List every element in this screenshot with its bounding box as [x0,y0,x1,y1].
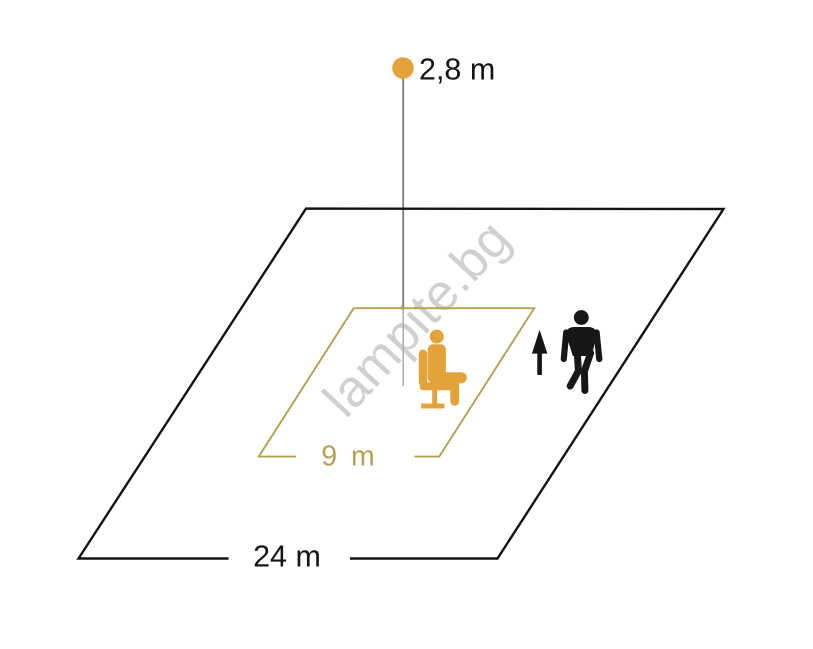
svg-text:24 m: 24 m [253,540,321,574]
svg-text:2,8 m: 2,8 m [419,53,495,87]
svg-text:9 m: 9 m [321,441,378,473]
